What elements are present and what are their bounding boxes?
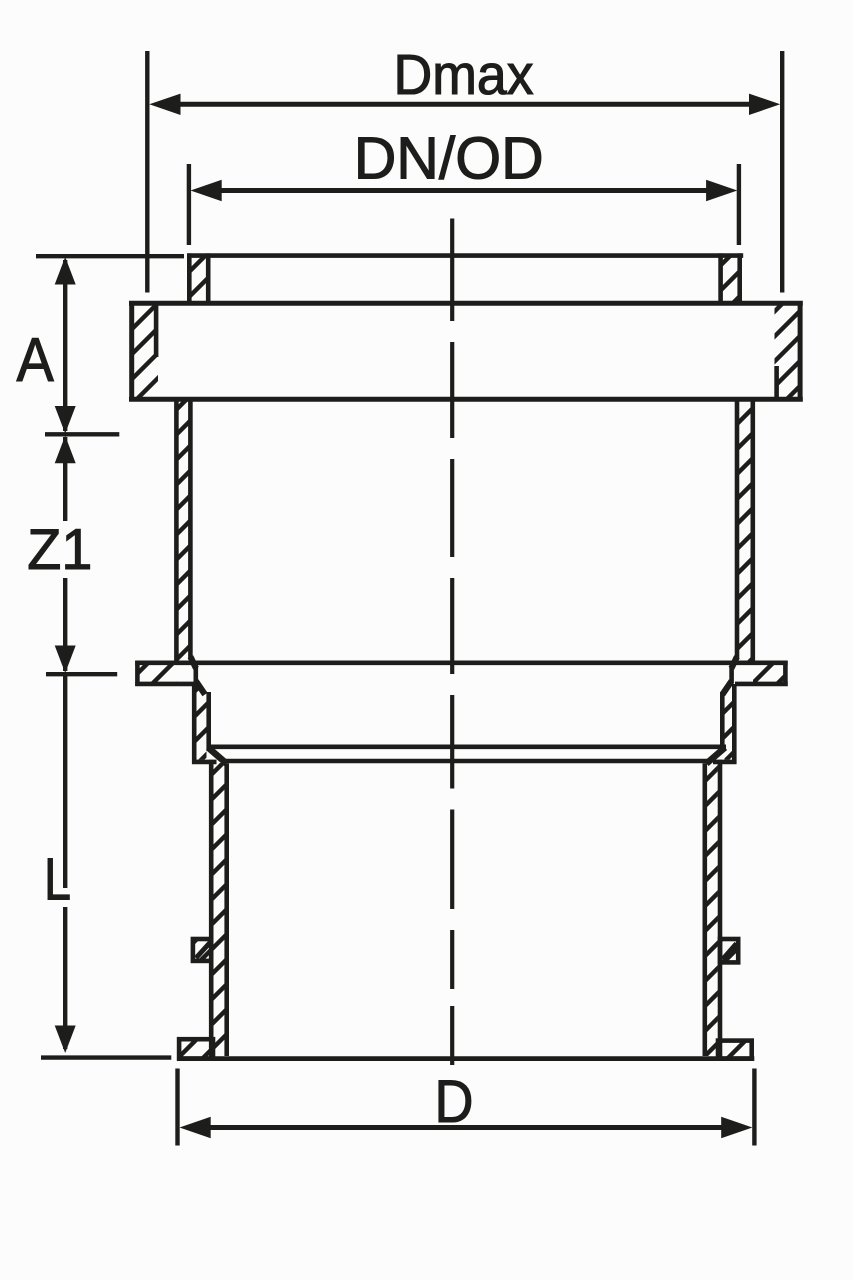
- svg-text:A: A: [17, 325, 55, 395]
- svg-text:Dmax: Dmax: [394, 44, 534, 107]
- svg-text:L: L: [44, 847, 71, 913]
- svg-text:DN/OD: DN/OD: [354, 126, 544, 192]
- svg-text:Z1: Z1: [27, 518, 92, 582]
- svg-text:D: D: [435, 1068, 474, 1135]
